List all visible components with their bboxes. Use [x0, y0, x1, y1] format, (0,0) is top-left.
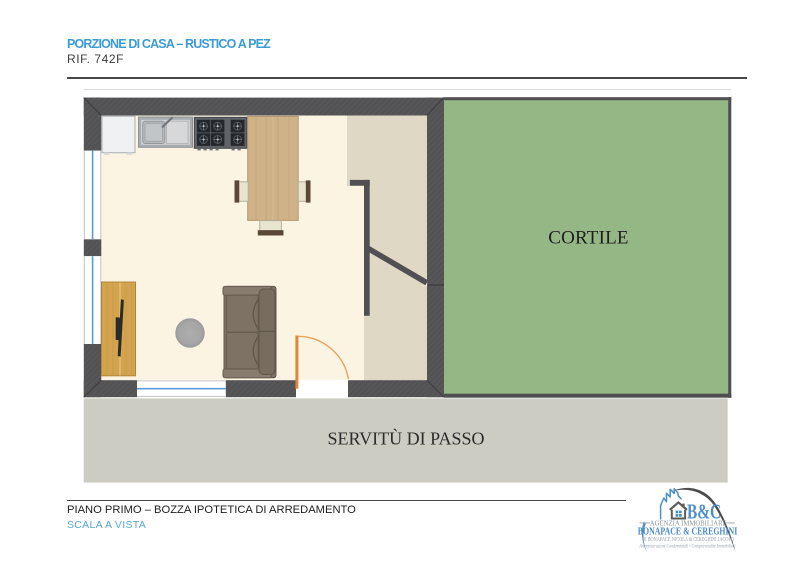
- svg-text:Amministrazioni Condominiali •: Amministrazioni Condominiali • Compraven…: [639, 544, 736, 550]
- svg-text:BONAPACE & CEREGHINI: BONAPACE & CEREGHINI: [638, 525, 738, 537]
- svg-text:CORTILE: CORTILE: [548, 228, 628, 249]
- svg-text:DI BONAPACE NICOLA & CEREGHINI: DI BONAPACE NICOLA & CEREGHINI JACOPO: [642, 537, 735, 543]
- svg-text:SERVITÙ DI PASSO: SERVITÙ DI PASSO: [328, 428, 485, 449]
